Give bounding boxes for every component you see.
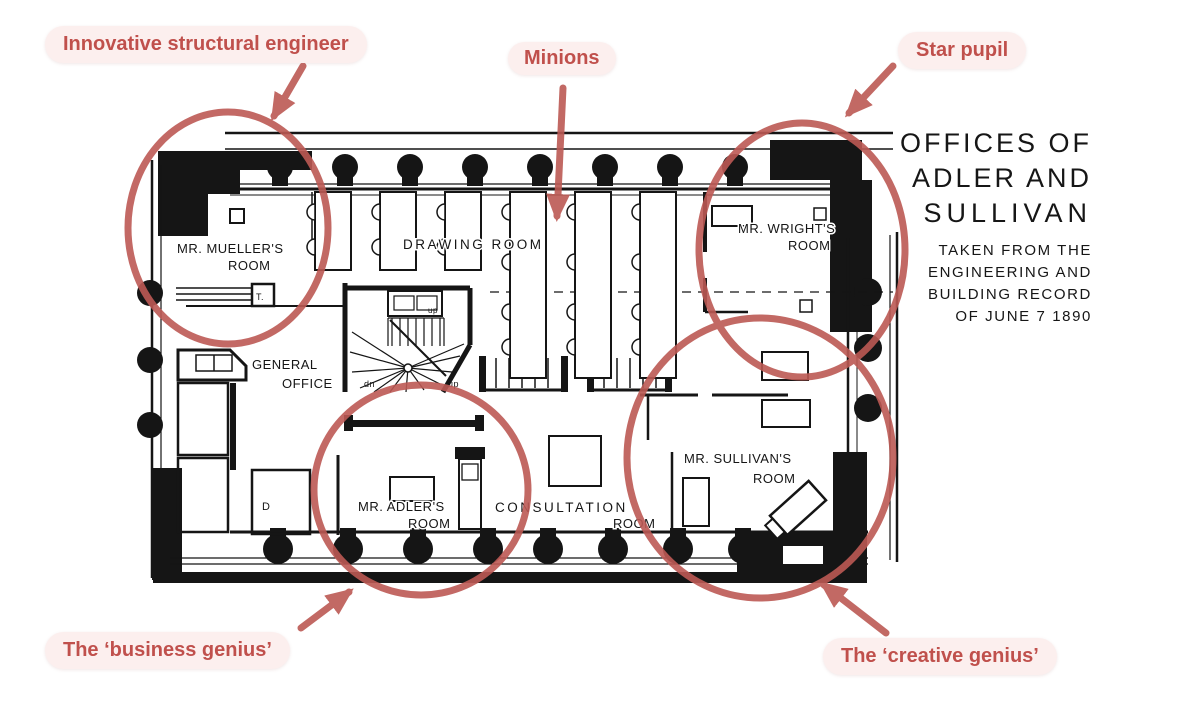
general-office-label-1: GENERAL: [252, 357, 318, 372]
adler-consultation-walls: [338, 436, 601, 535]
star-pupil-arrow: [849, 66, 893, 113]
annotated-floorplan: MR. MUELLER'S ROOM DRAWING ROOM MR. WRIG…: [0, 0, 1200, 702]
title-sub-4: OF JUNE 7 1890: [878, 306, 1092, 328]
staircase: [345, 288, 470, 392]
floor-plan-walls: [137, 133, 897, 583]
drafting-tables: [307, 192, 676, 378]
badge-business-genius-label: The ‘business genius’: [63, 639, 272, 661]
floorplan-svg: MR. MUELLER'S ROOM DRAWING ROOM MR. WRIG…: [0, 0, 1200, 702]
title-line-2: ADLER AND: [878, 161, 1092, 196]
mueller-room-label-1: MR. MUELLER'S: [177, 241, 284, 256]
stair-down-label: dn: [364, 379, 375, 389]
consultation-room-label-1: CONSULTATION: [495, 500, 628, 515]
badge-structural-engineer-label: Innovative structural engineer: [63, 33, 349, 55]
door-label: D: [262, 501, 270, 513]
title-sub-3: BUILDING RECORD: [878, 284, 1092, 306]
badge-minions-label: Minions: [524, 47, 600, 69]
sullivan-room-label-1: MR. SULLIVAN'S: [684, 451, 792, 466]
badge-minions: Minions: [508, 42, 616, 75]
minions-arrow: [557, 88, 563, 216]
wright-room-label-1: MR. WRIGHT'S: [738, 221, 835, 236]
business-genius-arrow: [301, 592, 349, 628]
general-office-label-2: OFFICE: [282, 376, 333, 391]
t-box-label: T.: [256, 292, 264, 302]
title-sub-1: TAKEN FROM THE: [878, 240, 1092, 262]
structural-engineer-arrow: [274, 66, 303, 116]
adler-room-label-1: MR. ADLER'S: [358, 499, 445, 514]
title-block: OFFICES OF ADLER AND SULLIVAN TAKEN FROM…: [878, 126, 1092, 328]
badge-creative-genius: The ‘creative genius’: [823, 638, 1057, 675]
badge-structural-engineer: Innovative structural engineer: [45, 26, 367, 63]
badge-business-genius: The ‘business genius’: [45, 632, 290, 669]
badge-creative-genius-label: The ‘creative genius’: [841, 645, 1039, 667]
top-columns: [267, 154, 748, 186]
title-line-1: OFFICES OF: [878, 126, 1092, 161]
creative-genius-arrow: [824, 585, 886, 633]
mueller-room-label-2: ROOM: [228, 258, 270, 273]
stair-up-label-2: up: [428, 306, 438, 315]
adler-room-label-2: ROOM: [408, 516, 450, 531]
title-line-3: SULLIVAN: [878, 196, 1092, 231]
badge-star-pupil-label: Star pupil: [916, 39, 1008, 61]
title-sub-2: ENGINEERING AND: [878, 262, 1092, 284]
drawing-room-label: DRAWING ROOM: [403, 237, 544, 252]
partition-bar: [344, 415, 484, 431]
sullivan-room-label-2: ROOM: [753, 471, 795, 486]
wright-room-label-2: ROOM: [788, 238, 830, 253]
badge-star-pupil: Star pupil: [898, 32, 1026, 69]
